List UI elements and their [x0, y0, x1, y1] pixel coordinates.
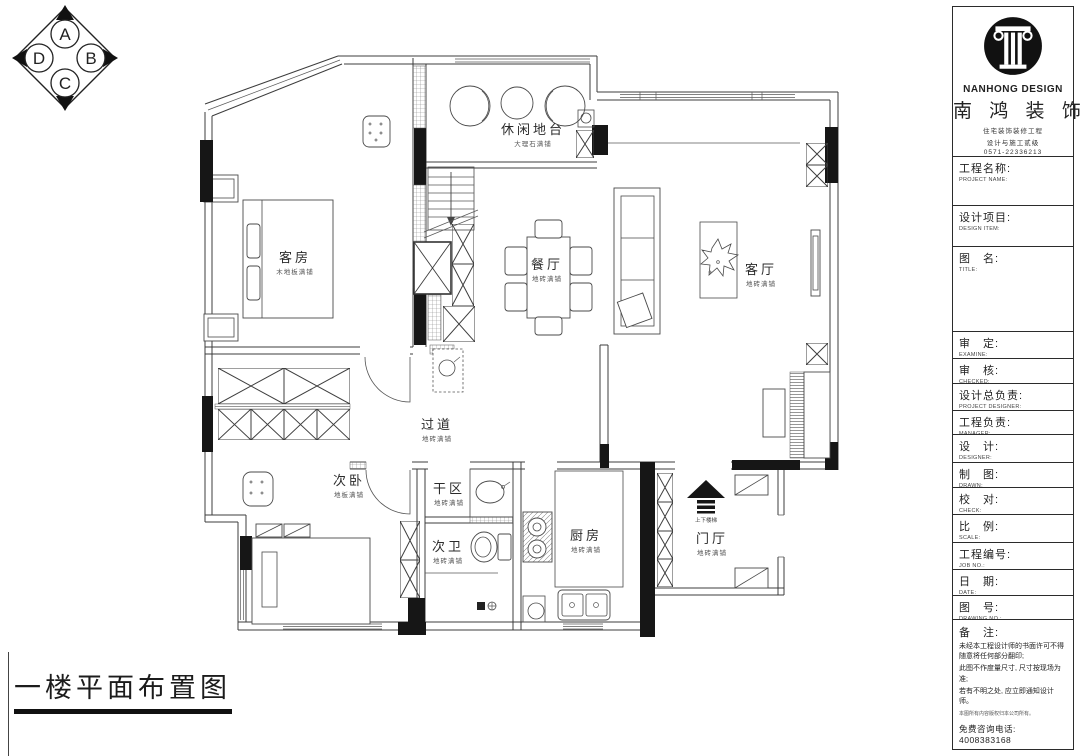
svg-text:木地板满铺: 木地板满铺	[276, 267, 314, 276]
field-drawing-no: 图 号: DRAWING NO.:	[953, 596, 1073, 621]
corridor-cabinet	[433, 349, 463, 392]
field-job-no: 工程编号: JOB NO.:	[953, 543, 1073, 570]
field-date: 日 期: DATE:	[953, 570, 1073, 596]
label-dry-area: 干区	[433, 481, 465, 496]
brand-name-en: NANHONG DESIGN	[953, 84, 1073, 95]
label-kitchen: 厨房	[570, 528, 602, 543]
staircase	[424, 167, 478, 238]
platform-furniture	[450, 86, 594, 127]
drawing-title-text: 一楼平面布置图	[14, 666, 232, 705]
nanhong-logo-icon	[982, 15, 1044, 77]
svg-text:地砖满铺: 地砖满铺	[434, 498, 464, 507]
label-living: 客厅	[745, 262, 777, 277]
foyer-stair-icon	[687, 480, 725, 514]
field-examine: 审 定: EXAMINE:	[953, 332, 1073, 360]
hotline: 免费咨询电话: 4008383168	[959, 723, 1067, 745]
sheet-border-line	[8, 652, 9, 756]
brand-tagline-2: 设计与施工贰级	[953, 137, 1073, 147]
field-manager: 工程负责: MANAGER:	[953, 411, 1073, 436]
field-checked: 审 核: CHECKED:	[953, 359, 1073, 384]
compass-letter-c: C	[59, 74, 71, 93]
label-platform: 休闲地台	[501, 122, 565, 137]
svg-text:地砖满铺: 地砖满铺	[697, 548, 727, 557]
field-project-name: 工程名称: PROJECT NAME:	[953, 157, 1073, 206]
label-guest-room: 客房	[279, 250, 311, 265]
field-scale: 比 例: SCALE:	[953, 515, 1073, 544]
svg-text:地砖满铺: 地砖满铺	[746, 279, 776, 288]
label-foyer: 门厅	[696, 531, 728, 546]
compass-letter-d: D	[33, 49, 45, 68]
guest-room-furniture	[243, 116, 390, 318]
compass: A B C D	[12, 5, 118, 111]
brand-tagline-1: 住宅装饰装修工程	[953, 125, 1073, 135]
svg-text:地板满铺: 地板满铺	[334, 490, 364, 499]
drawing-title-underline	[14, 709, 232, 714]
company-header: NANHONG DESIGN 南 鸿 装 饰 住宅装饰装修工程 设计与施工贰级 …	[953, 7, 1073, 157]
field-title: 图 名: TITLE:	[953, 247, 1073, 331]
svg-text:大理石满铺: 大理石满铺	[514, 139, 552, 148]
brand-tagline-3: 0571-22336213	[953, 149, 1073, 156]
brand-name-cn: 南 鸿 装 饰	[953, 96, 1073, 123]
field-project-designer: 设计总负责: PROJECT DESIGNER:	[953, 384, 1073, 411]
room-labels: 客房 木地板满铺 休闲地台 大理石满铺 餐厅 地砖满铺 客厅 地砖满铺 过道 地…	[276, 122, 777, 565]
notes-block: 备 注: 未经本工程设计师的书面许可不得随意将任何部分翻印; 此图不作度量尺寸,…	[953, 620, 1073, 749]
compass-letter-a: A	[59, 25, 71, 44]
field-designer: 设 计: DESIGNER:	[953, 435, 1073, 463]
notes-label: 备 注:	[959, 624, 1067, 640]
bath-furniture	[470, 469, 513, 610]
svg-text:地砖满铺: 地砖满铺	[532, 274, 562, 283]
doors	[365, 357, 410, 514]
drawing-title: 一楼平面布置图	[14, 666, 232, 714]
wall-openings	[360, 346, 786, 557]
label-dining: 餐厅	[531, 257, 563, 272]
label-stairs: 上下楼梯	[695, 516, 718, 524]
svg-text:地砖满铺: 地砖满铺	[571, 545, 601, 554]
svg-text:地砖满铺: 地砖满铺	[422, 434, 452, 443]
field-design-item: 设计项目: DESIGN ITEM:	[953, 206, 1073, 247]
floor-plan: A B C D	[0, 0, 948, 756]
svg-text:地砖满铺: 地砖满铺	[433, 556, 463, 565]
title-block: NANHONG DESIGN 南 鸿 装 饰 住宅装饰装修工程 设计与施工贰级 …	[952, 6, 1074, 750]
field-drawn: 制 图: DRAWN:	[953, 463, 1073, 489]
compass-letter-b: B	[85, 49, 96, 68]
label-corridor: 过道	[421, 417, 453, 432]
field-check: 校 对: CHECK:	[953, 488, 1073, 515]
label-bath2: 次卫	[432, 539, 464, 554]
label-bedroom2: 次卧	[333, 473, 365, 488]
